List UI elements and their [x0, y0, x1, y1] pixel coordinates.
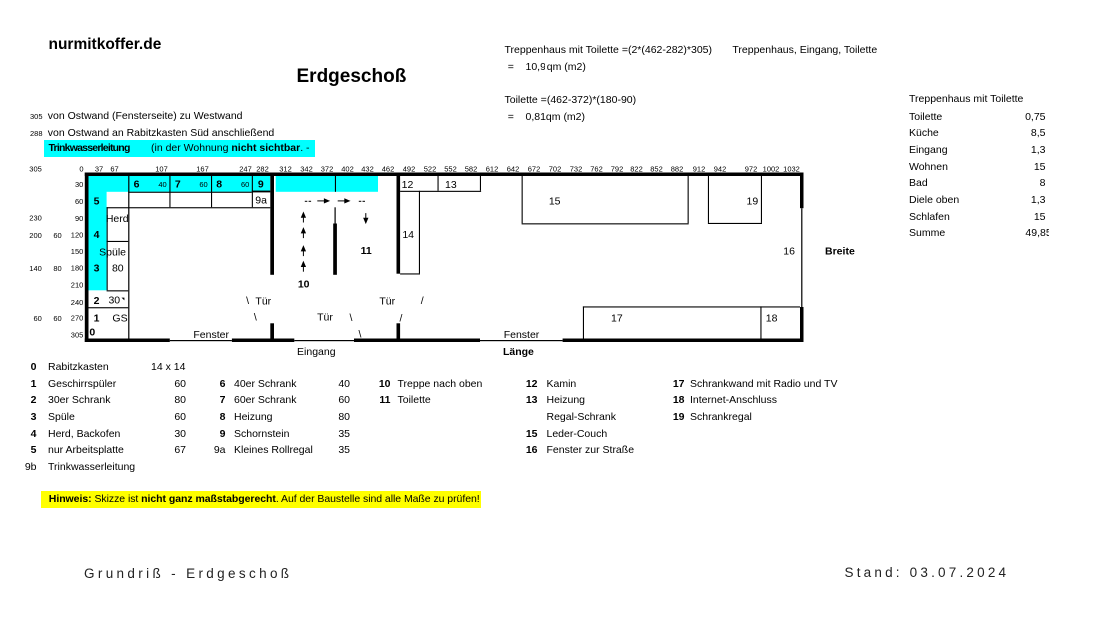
svg-text:14: 14	[402, 229, 414, 241]
svg-text:67: 67	[110, 164, 118, 173]
svg-text:1002: 1002	[763, 164, 780, 173]
svg-text:942: 942	[714, 164, 727, 173]
svg-text:37: 37	[95, 164, 103, 173]
svg-text:522: 522	[424, 164, 437, 173]
svg-text:4: 4	[94, 229, 100, 241]
svg-text:60: 60	[53, 314, 61, 323]
svg-text:/: /	[399, 312, 402, 324]
svg-text:882: 882	[671, 164, 684, 173]
svg-text:762: 762	[590, 164, 603, 173]
svg-text:732: 732	[570, 164, 583, 173]
svg-text:11: 11	[361, 245, 372, 257]
svg-text:972: 972	[745, 164, 758, 173]
svg-text:492: 492	[403, 164, 416, 173]
svg-text:18: 18	[766, 313, 778, 325]
svg-text:642: 642	[507, 164, 520, 173]
svg-text:1: 1	[94, 313, 100, 325]
svg-text:\: \	[246, 295, 249, 307]
svg-text:822: 822	[630, 164, 643, 173]
svg-text:Spüle: Spüle	[99, 246, 126, 258]
svg-text:462: 462	[382, 164, 395, 173]
svg-text:GS: GS	[112, 312, 127, 324]
svg-text:Tür: Tür	[379, 295, 395, 307]
svg-text:305: 305	[29, 165, 42, 174]
svg-text:247: 247	[239, 164, 252, 173]
svg-text:Breite: Breite	[825, 246, 855, 258]
svg-text:6: 6	[134, 179, 140, 191]
svg-text:10: 10	[298, 278, 310, 290]
svg-text:372: 372	[321, 164, 334, 173]
svg-text:140: 140	[29, 264, 42, 273]
svg-text:30: 30	[108, 295, 120, 307]
svg-text:80: 80	[53, 264, 61, 273]
svg-text:60: 60	[53, 231, 61, 240]
svg-text:240: 240	[71, 298, 84, 307]
svg-text:270: 270	[71, 314, 84, 323]
svg-text:60: 60	[75, 197, 83, 206]
svg-text:7: 7	[175, 179, 181, 191]
svg-text:552: 552	[444, 164, 457, 173]
svg-text:402: 402	[341, 164, 354, 173]
svg-text:912: 912	[693, 164, 706, 173]
svg-text:Länge: Länge	[503, 346, 534, 358]
svg-text:432: 432	[361, 164, 374, 173]
svg-text:Fenster: Fenster	[193, 329, 229, 341]
svg-text:\: \	[349, 312, 352, 324]
svg-text:Fenster: Fenster	[504, 329, 540, 341]
svg-text:/: /	[421, 295, 424, 307]
svg-text:9: 9	[258, 179, 264, 191]
svg-text:16: 16	[783, 246, 795, 258]
svg-text:8: 8	[216, 179, 222, 191]
svg-text:3: 3	[94, 263, 100, 275]
svg-text:Tür: Tür	[317, 311, 333, 323]
svg-text:80: 80	[112, 263, 124, 275]
svg-text:312: 312	[279, 164, 292, 173]
svg-text:12: 12	[402, 179, 414, 191]
svg-text:230: 230	[29, 214, 42, 223]
svg-text:60: 60	[241, 180, 249, 189]
svg-text:107: 107	[155, 164, 168, 173]
svg-text:13: 13	[445, 179, 457, 191]
svg-text:342: 342	[300, 164, 313, 173]
svg-text:5: 5	[94, 195, 100, 207]
svg-text:210: 210	[71, 281, 84, 290]
svg-text:\: \	[358, 329, 361, 341]
svg-text:40: 40	[158, 180, 166, 189]
svg-text:582: 582	[465, 164, 478, 173]
svg-text:\: \	[254, 312, 257, 324]
svg-text:2: 2	[94, 295, 100, 307]
svg-text:Tür: Tür	[255, 295, 271, 307]
svg-text:17: 17	[611, 313, 623, 325]
svg-text:Eingang: Eingang	[297, 346, 336, 358]
svg-text:Herd: Herd	[106, 213, 129, 225]
svg-text:150: 150	[71, 247, 84, 256]
svg-text:852: 852	[650, 164, 663, 173]
svg-text:672: 672	[528, 164, 541, 173]
svg-text:282: 282	[256, 164, 269, 173]
svg-text:305: 305	[71, 331, 84, 340]
svg-text:120: 120	[71, 231, 84, 240]
svg-text:702: 702	[549, 164, 562, 173]
svg-text:60: 60	[199, 180, 207, 189]
svg-text:167: 167	[196, 164, 209, 173]
svg-text:30: 30	[75, 180, 83, 189]
svg-text:0: 0	[89, 327, 95, 339]
svg-text:90: 90	[75, 214, 83, 223]
svg-text:200: 200	[29, 231, 42, 240]
svg-text:9a: 9a	[255, 195, 267, 207]
svg-text:1032: 1032	[783, 164, 800, 173]
svg-text:612: 612	[486, 164, 499, 173]
svg-text:792: 792	[611, 164, 624, 173]
svg-text:19: 19	[747, 196, 759, 208]
svg-text:60: 60	[33, 314, 41, 323]
svg-text:180: 180	[71, 264, 84, 273]
svg-text:15: 15	[549, 196, 561, 208]
svg-text:0: 0	[79, 164, 83, 173]
